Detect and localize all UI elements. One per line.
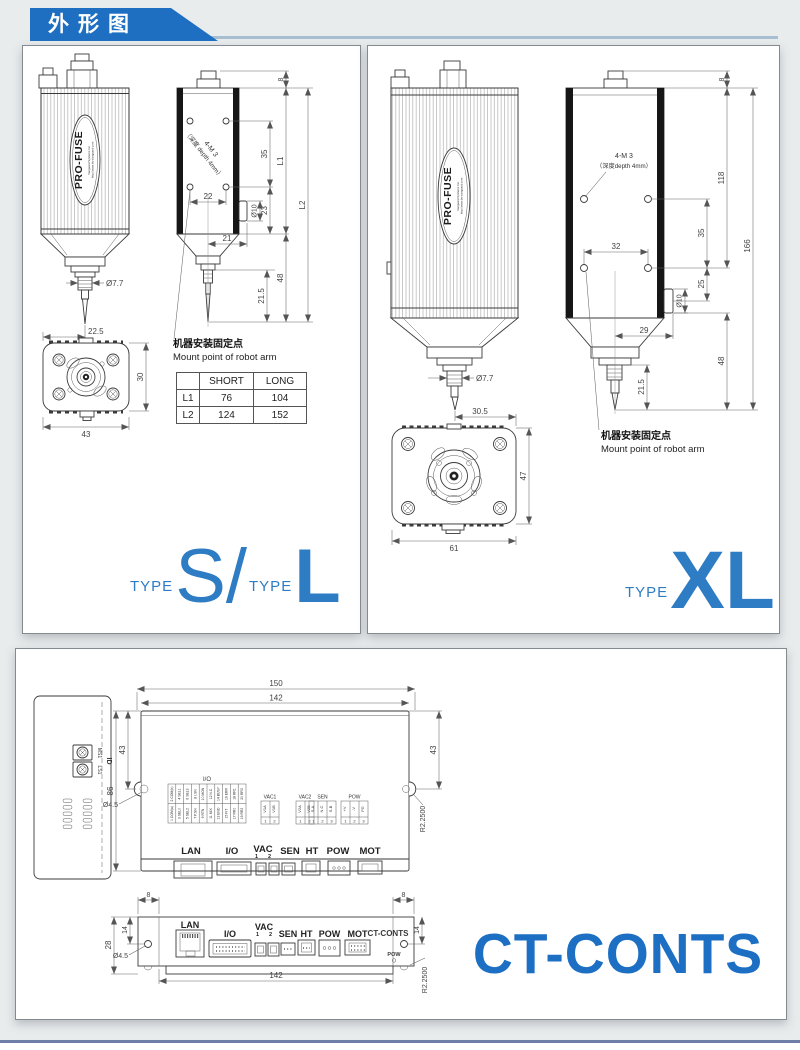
- rotary-ms1-label: MS1: [96, 748, 102, 759]
- dim-28: 28: [104, 940, 113, 949]
- dim-48: 48: [717, 356, 726, 365]
- table-row: L1 76 104: [177, 390, 307, 407]
- io-pin: 7 P.SN: [193, 808, 197, 819]
- io-pin: 18 RR1: [232, 788, 236, 800]
- io-pin-table: I/O 2 COM(b) 4 SEL1 6 SEL3 8 I.SN 10 MON…: [168, 777, 246, 823]
- front-vac-sub-2: 2: [269, 932, 272, 938]
- dim-43-right: 43: [429, 745, 438, 754]
- io-pin: 20 RR3: [240, 788, 244, 800]
- dim-knob-dia: Ø10: [252, 204, 259, 217]
- panel-print-ct-conts: CT-CONTS: [368, 929, 410, 938]
- front-label-pow: POW: [319, 929, 341, 939]
- mount-point-label: 机器安装固定点 Mount point of robot arm: [173, 339, 277, 363]
- l1-short: 76: [200, 390, 254, 407]
- front-label-sen: SEN: [279, 929, 298, 939]
- front-label-ht: HT: [301, 929, 313, 939]
- dim-top8: 8: [278, 77, 285, 81]
- xl-front-view: 4-M 3 （深度depth 4mm） 32 8 118 48 166 35 2…: [566, 71, 758, 430]
- dim-150: 150: [269, 679, 283, 688]
- section-header-banner: 外形图: [30, 8, 218, 41]
- pin-label: V1A: [262, 805, 267, 813]
- io-pin: 5 SEL2: [186, 808, 190, 819]
- l2-short: 124: [200, 407, 254, 424]
- mount-point-cn: 机器安装固定点: [601, 431, 705, 444]
- vac-sub-1: 1: [255, 854, 258, 860]
- io-table-label: I/O: [203, 777, 211, 783]
- port-label-mot: MOT: [359, 846, 380, 857]
- port-label-ht: HT: [306, 846, 319, 857]
- io-pin: 4 SEL1: [178, 788, 182, 799]
- l1-long: 104: [254, 390, 307, 407]
- type-word: TYPE: [625, 584, 668, 601]
- conn-table-label: VAC2: [299, 795, 312, 801]
- page-title: 外形图: [30, 8, 218, 41]
- front-vac-sub-1: 1: [256, 932, 259, 938]
- length-spec-table: SHORT LONG L1 76 104 L2 124 152: [176, 372, 307, 424]
- dim-hole-span-h: 32: [612, 242, 621, 251]
- dim-14-right: 14: [414, 926, 421, 934]
- dim-tip-offset: 30.5: [472, 407, 488, 416]
- port-label-lan: LAN: [181, 846, 201, 857]
- dim-nozzle-dia: Ø7.7: [106, 279, 124, 288]
- dim-29: 29: [640, 326, 649, 335]
- pin-label: S-B: [328, 805, 333, 812]
- xl-side-view: PRO-FUSE Vanguard Systems Inc. http://ww…: [387, 61, 518, 426]
- io-pin: 15 FIT: [225, 809, 229, 819]
- dim-notch-radius: R2.2500: [422, 967, 429, 994]
- io-pin: 17 RR0: [232, 808, 236, 820]
- table-header-blank: [177, 373, 200, 390]
- dim-118: 118: [717, 171, 726, 184]
- io-pin: 9 RTN: [201, 808, 205, 818]
- dim-21-5: 21.5: [257, 288, 266, 304]
- front-label-vac: VAC: [255, 922, 274, 932]
- io-pin: 3 SEL0: [178, 808, 182, 819]
- dim-hole-span-h: 22: [204, 192, 213, 201]
- hole-note: 4-M 3: [615, 153, 633, 160]
- dim-notch-radius: R2.2500: [420, 806, 427, 833]
- io-pin: 12 N.C: [209, 788, 213, 799]
- port-label-sen: SEN: [280, 846, 300, 857]
- vac-sub-2: 2: [268, 854, 271, 860]
- panel-type-sl: PRO-FUSE Vanguard Systems Inc. http://ww…: [22, 45, 361, 634]
- mount-point-cn: 机器安装固定点: [173, 339, 277, 352]
- dim-l2: L2: [298, 200, 307, 209]
- io-pin: 6 SEL3: [186, 788, 190, 799]
- dim-nozzle-dia: Ø7.7: [476, 374, 494, 383]
- dim-ear-8-right: 8: [402, 892, 406, 899]
- ct-top-view: 150 142 86 43 Ø4.5 43 R2.2500 I/O 2 COM(…: [103, 679, 442, 878]
- io-pin: 14 BUSY: [217, 786, 221, 801]
- pin-label: V1B: [271, 805, 276, 813]
- id-label: ID: [105, 758, 112, 765]
- ct-side-view: MS1 LS1 ID: [34, 696, 112, 879]
- dim-top8: 8: [719, 77, 726, 81]
- port-label-pow: POW: [327, 846, 350, 857]
- conn-table-label: SEN: [317, 795, 328, 801]
- io-pin: 10 MON: [201, 787, 205, 800]
- dim-35: 35: [260, 149, 269, 158]
- dim-flange-h: 30: [136, 372, 145, 381]
- panel-controller: MS1 LS1 ID 150 142 86 43 Ø4.5 43 R: [15, 648, 787, 1020]
- dim-knob-dia: Ø10: [677, 294, 684, 307]
- port-label-io: I/O: [226, 846, 239, 857]
- dim-14-left: 14: [122, 926, 129, 934]
- type-xl-logo: TYPE XL: [623, 534, 775, 614]
- brand-logo: PRO-FUSE: [73, 131, 85, 189]
- dim-ear-8-left: 8: [147, 892, 151, 899]
- io-pin: 16 ERR: [225, 788, 229, 800]
- brand-logo: PRO-FUSE: [442, 167, 454, 225]
- brand-url: http://www.by-vanguard.com: [460, 177, 464, 214]
- type-xl-letters: XL: [670, 547, 775, 614]
- dim-48: 48: [276, 273, 285, 282]
- dim-flange-h: 47: [519, 471, 528, 480]
- hole-note-depth: （深度depth 4mm）: [596, 162, 652, 170]
- io-pin: 8 I.SN: [193, 789, 197, 799]
- dim-flange-w: 61: [450, 544, 459, 553]
- type-word: TYPE: [130, 578, 173, 595]
- io-pin: 11 MIX: [209, 808, 213, 819]
- dim-hole-dia: Ø4.5: [103, 802, 118, 809]
- conn-table-label: POW: [349, 795, 361, 801]
- sl-side-view: PRO-FUSE Vanguard Systems Inc. http://ww…: [39, 54, 129, 341]
- dim-tip-offset: 22.5: [88, 327, 104, 336]
- header-rule: [160, 36, 778, 39]
- type-s-letter: S: [175, 546, 226, 608]
- mount-point-en: Mount point of robot arm: [173, 352, 277, 364]
- pow-led-label: POW: [387, 952, 401, 958]
- dim-35: 35: [697, 228, 706, 237]
- conn-table-label: VAC1: [264, 795, 277, 801]
- dim-l1: L1: [276, 156, 285, 165]
- front-label-lan: LAN: [181, 920, 200, 930]
- dim-142: 142: [269, 694, 283, 703]
- table-header-short: SHORT: [200, 373, 254, 390]
- sl-front-view: 4-M 3 （深度 depth 4mm） 22 8 L1 48 L2 35 23…: [174, 71, 313, 339]
- front-label-io: I/O: [224, 929, 236, 939]
- pin-label: V2A: [297, 805, 302, 813]
- pin-label: N.C: [319, 805, 324, 812]
- ct-conts-logo: CT-CONTS: [458, 921, 778, 987]
- io-pin: 13 END: [217, 807, 221, 819]
- pin-label: S-A: [310, 805, 315, 812]
- io-pin: 2 COM(b): [170, 787, 174, 802]
- panel-type-xl: PRO-FUSE Vanguard Systems Inc. http://ww…: [367, 45, 780, 634]
- dim-hole-dia: Ø4.5: [113, 953, 128, 960]
- table-row: L2 124 152: [177, 407, 307, 424]
- dim-21-5: 21.5: [637, 379, 646, 395]
- dim-86: 86: [106, 786, 115, 795]
- pin-label: FG: [360, 806, 365, 812]
- dim-21: 21: [223, 234, 232, 243]
- dim-flange-w: 43: [82, 430, 91, 439]
- io-pin: 19 RR2: [240, 808, 244, 820]
- dim-23: 23: [260, 206, 269, 215]
- dim-166: 166: [743, 239, 752, 253]
- footer-space: [0, 1043, 800, 1050]
- pin-label: -V: [351, 807, 356, 811]
- sl-flange-view: 30 43: [43, 338, 149, 439]
- type-l-letter: L: [294, 546, 340, 608]
- dim-25: 25: [697, 279, 706, 288]
- type-slash: /: [226, 546, 247, 608]
- rotary-ls1-label: LS1: [96, 766, 102, 775]
- table-header-long: LONG: [254, 373, 307, 390]
- mount-point-label: 机器安装固定点 Mount point of robot arm: [601, 431, 705, 455]
- mount-point-en: Mount point of robot arm: [601, 444, 705, 456]
- l2-long: 152: [254, 407, 307, 424]
- row-label-l1: L1: [177, 390, 200, 407]
- type-word: TYPE: [249, 578, 292, 595]
- dim-142-front: 142: [269, 971, 283, 980]
- pin-label: +V: [342, 806, 347, 811]
- dim-43-left: 43: [118, 745, 127, 754]
- ct-front-view: 8 8 14 14 28 Ø4.5 142 R2.2500: [104, 892, 429, 993]
- xl-flange-view: 47 61: [392, 424, 532, 553]
- brand-url: http://www.by-vanguard.com: [91, 141, 95, 178]
- io-pin: 1 COM(a): [170, 806, 174, 821]
- front-label-mot: MOT: [348, 929, 368, 939]
- type-sl-logo: TYPE S / TYPE L: [128, 528, 341, 608]
- row-label-l2: L2: [177, 407, 200, 424]
